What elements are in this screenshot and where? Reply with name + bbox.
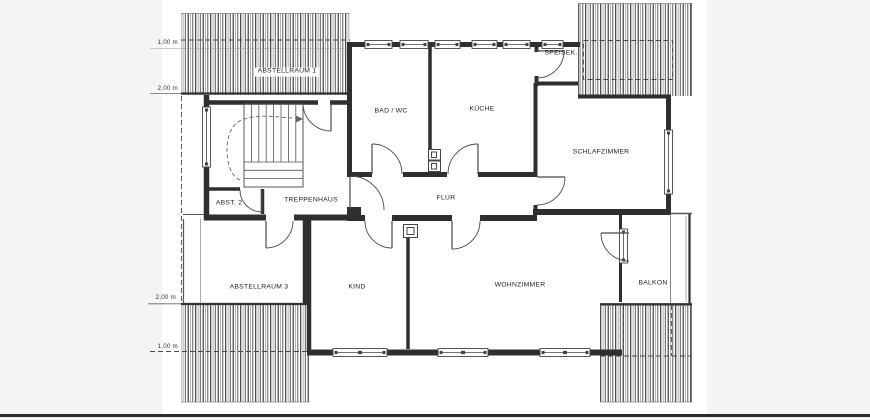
- room-label-treppenhaus: TREPPENHAUS: [284, 198, 338, 205]
- room-label-balkon: BALKON: [638, 281, 667, 288]
- room-label-abstellraum-3: ABSTELLRAUM 3: [230, 285, 289, 292]
- room-label-abstellraum-1: ABSTELLRAUM 1: [255, 68, 320, 77]
- room-label-bad-wc: BAD / WC: [375, 109, 408, 116]
- room-label-wohnzimmer: WOHNZIMMER: [495, 283, 546, 290]
- dim-label-2m-bottom: 2,00 m: [146, 295, 176, 301]
- floor-plan-stage: ABSTELLRAUM 1 BAD / WC KÜCHE SPEISEK. SC…: [0, 0, 870, 420]
- bottom-frame-line: [0, 414, 870, 420]
- room-label-kind: KIND: [348, 285, 365, 292]
- dim-label-1m-top: 1,00 m: [148, 40, 178, 46]
- dim-label-2m-top: 2,00 m: [148, 86, 178, 92]
- room-label-schlafzimmer: SCHLAFZIMMER: [573, 150, 630, 157]
- room-label-abst-2: ABST. 2: [216, 201, 242, 208]
- room-label-flur: FLUR: [437, 196, 456, 203]
- roof-hatch-top-right: [578, 3, 692, 96]
- dim-label-1m-bottom: 1,00 m: [148, 344, 178, 350]
- room-label-kueche: KÜCHE: [469, 107, 494, 114]
- floor-plan-drawing: [0, 0, 870, 420]
- room-label-speisekammer: SPEISEK.: [545, 51, 578, 58]
- background: [0, 0, 870, 420]
